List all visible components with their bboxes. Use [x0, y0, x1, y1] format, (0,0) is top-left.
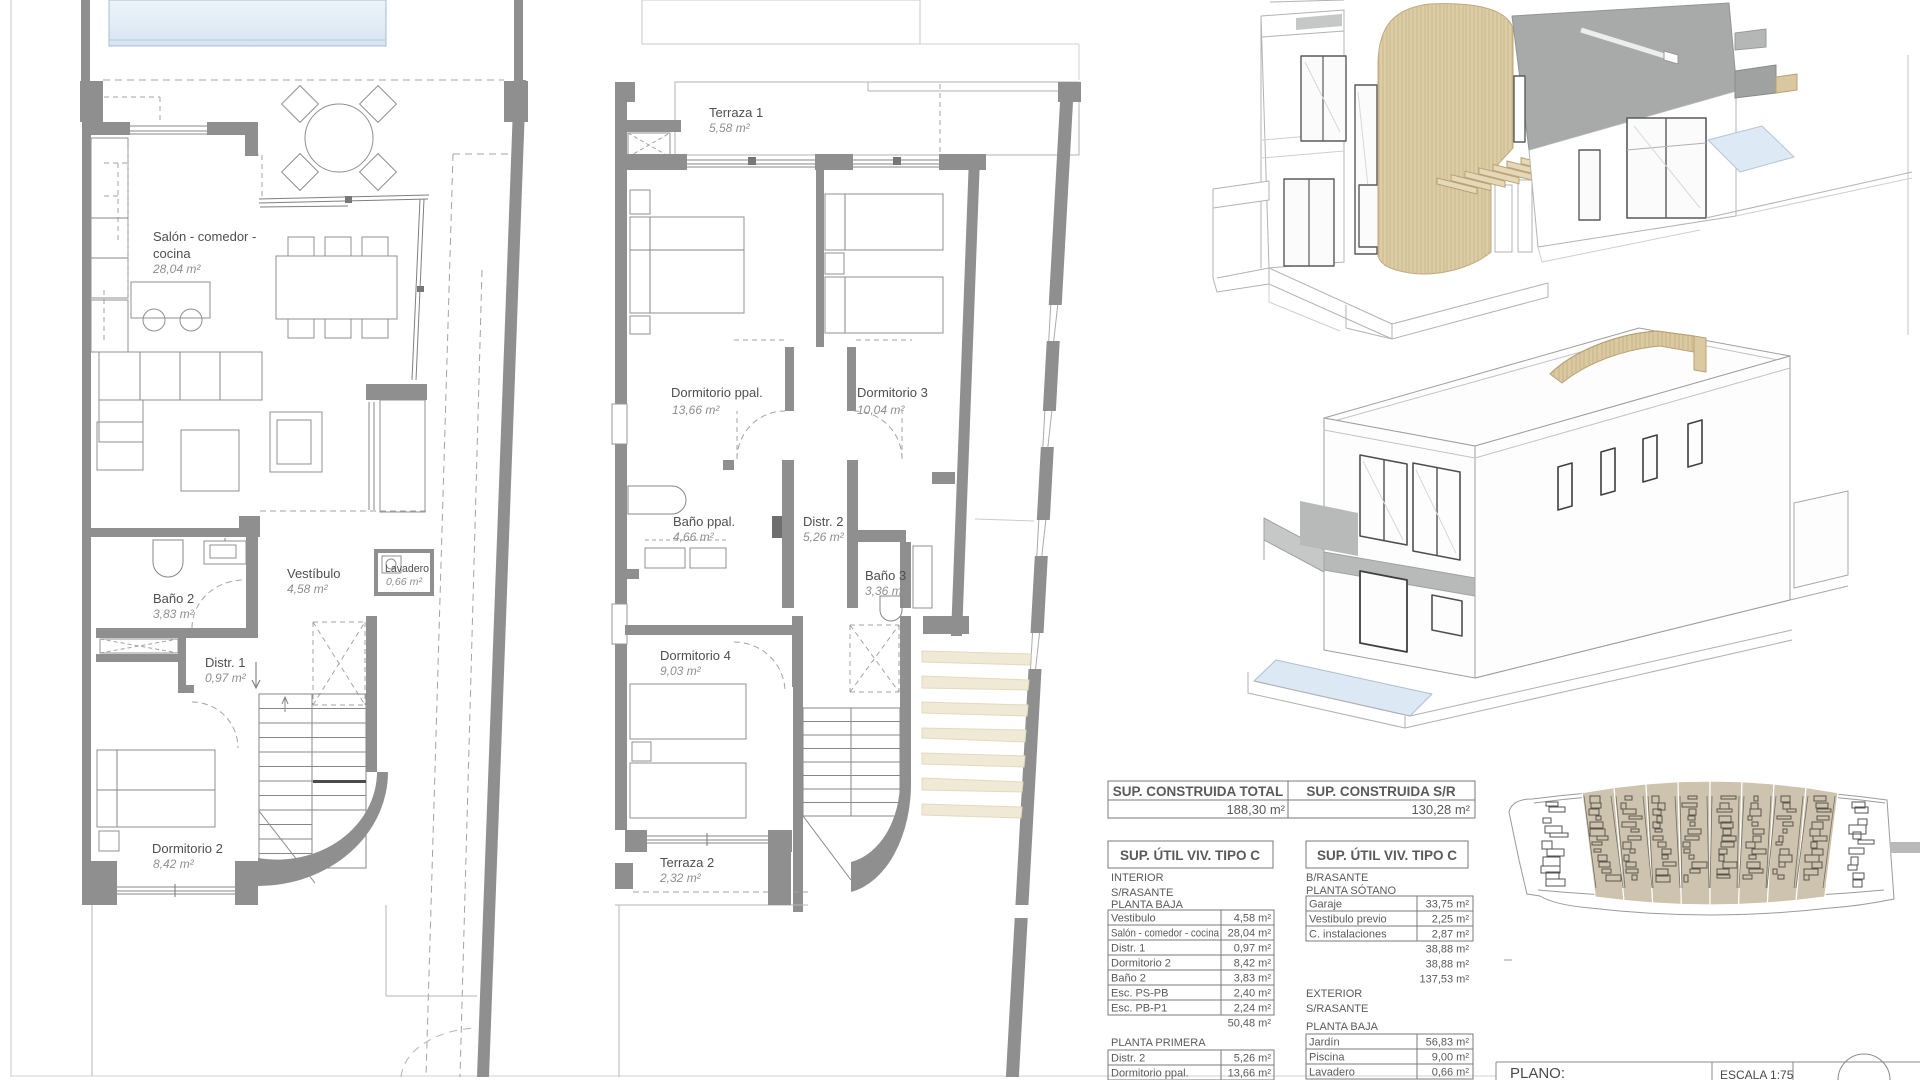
svg-text:5,26 m²: 5,26 m²: [803, 530, 845, 544]
svg-text:13,66 m²: 13,66 m²: [672, 403, 720, 417]
svg-text:Baño 2: Baño 2: [1111, 973, 1146, 985]
svg-text:Jardín: Jardín: [1309, 1037, 1340, 1049]
svg-text:PLANTA PRIMERA: PLANTA PRIMERA: [1111, 1037, 1206, 1049]
svg-text:PLANO:: PLANO:: [1510, 1065, 1565, 1080]
svg-text:Dormitorio ppal.: Dormitorio ppal.: [671, 385, 763, 400]
svg-text:Dormitorio 2: Dormitorio 2: [1111, 958, 1171, 970]
svg-text:50,48 m²: 50,48 m²: [1228, 1018, 1272, 1030]
svg-text:EXTERIOR: EXTERIOR: [1306, 988, 1362, 1000]
svg-text:2,40 m²: 2,40 m²: [1234, 988, 1272, 1000]
svg-text:4,58 m²: 4,58 m²: [1234, 913, 1272, 925]
svg-text:2,25 m²: 2,25 m²: [1432, 914, 1470, 926]
svg-text:Salón - comedor - cocina: Salón - comedor - cocina: [1111, 928, 1220, 940]
svg-text:S/RASANTE: S/RASANTE: [1111, 887, 1173, 899]
svg-text:8,42 m²: 8,42 m²: [153, 857, 195, 871]
svg-text:PLANTA BAJA: PLANTA BAJA: [1111, 899, 1184, 911]
svg-text:INTERIOR: INTERIOR: [1111, 872, 1164, 884]
svg-text:4,58 m²: 4,58 m²: [287, 582, 329, 596]
svg-text:SUP. ÚTIL VIV. TIPO C: SUP. ÚTIL VIV. TIPO C: [1317, 848, 1457, 863]
svg-text:3,83 m²: 3,83 m²: [1234, 973, 1272, 985]
svg-text:13,66 m²: 13,66 m²: [1228, 1068, 1272, 1080]
svg-text:Vestíbulo: Vestíbulo: [287, 566, 341, 581]
svg-text:9,03 m²: 9,03 m²: [660, 664, 702, 678]
svg-text:Baño 3: Baño 3: [865, 568, 906, 583]
svg-text:Vestibulo: Vestibulo: [1111, 913, 1156, 925]
svg-text:5,26 m²: 5,26 m²: [1234, 1053, 1272, 1065]
svg-text:Distr. 1: Distr. 1: [205, 655, 245, 670]
svg-text:4,66 m²: 4,66 m²: [673, 530, 715, 544]
svg-text:cocina: cocina: [153, 246, 191, 261]
svg-text:0,97 m²: 0,97 m²: [205, 671, 247, 685]
svg-text:SUP. CONSTRUIDA TOTAL: SUP. CONSTRUIDA TOTAL: [1113, 784, 1284, 799]
svg-text:Lavadero: Lavadero: [385, 563, 429, 575]
svg-text:38,88 m²: 38,88 m²: [1426, 959, 1470, 971]
svg-text:Garaje: Garaje: [1309, 899, 1342, 911]
svg-text:Esc. PB-P1: Esc. PB-P1: [1111, 1003, 1167, 1015]
svg-text:Piscina: Piscina: [1309, 1052, 1345, 1064]
svg-text:C. instalaciones: C. instalaciones: [1309, 929, 1387, 941]
svg-text:2,24 m²: 2,24 m²: [1234, 1003, 1272, 1015]
svg-text:Baño ppal.: Baño ppal.: [673, 514, 735, 529]
svg-text:Dormitorio 2: Dormitorio 2: [152, 841, 223, 856]
svg-text:10,04 m²: 10,04 m²: [857, 403, 905, 417]
svg-text:SUP. CONSTRUIDA S/R: SUP. CONSTRUIDA S/R: [1306, 784, 1456, 799]
svg-text:ESCALA 1:75: ESCALA 1:75: [1720, 1068, 1794, 1080]
svg-text:Dormitorio 3: Dormitorio 3: [857, 385, 928, 400]
svg-text:33,75 m²: 33,75 m²: [1426, 899, 1470, 911]
svg-text:3,83 m²: 3,83 m²: [153, 607, 195, 621]
svg-text:5,58 m²: 5,58 m²: [709, 121, 751, 135]
svg-text:9,00 m²: 9,00 m²: [1432, 1052, 1470, 1064]
svg-text:Salón - comedor -: Salón - comedor -: [153, 229, 256, 244]
svg-text:PLANTA SÓTANO: PLANTA SÓTANO: [1306, 884, 1397, 897]
svg-text:8,42 m²: 8,42 m²: [1234, 958, 1272, 970]
svg-text:B/RASANTE: B/RASANTE: [1306, 872, 1368, 884]
svg-text:188,30 m²: 188,30 m²: [1226, 802, 1285, 817]
svg-text:0,97 m²: 0,97 m²: [1234, 943, 1272, 955]
svg-text:137,53 m²: 137,53 m²: [1419, 974, 1469, 986]
svg-text:56,83 m²: 56,83 m²: [1426, 1037, 1470, 1049]
svg-text:38,88 m²: 38,88 m²: [1426, 944, 1470, 956]
svg-text:28,04 m²: 28,04 m²: [1228, 928, 1272, 940]
svg-text:0,66 m²: 0,66 m²: [1432, 1067, 1470, 1079]
svg-text:Dormitorio ppal.: Dormitorio ppal.: [1111, 1068, 1189, 1080]
svg-text:Lavadero: Lavadero: [1309, 1067, 1355, 1079]
svg-text:0,66 m²: 0,66 m²: [386, 576, 422, 588]
svg-text:Baño 2: Baño 2: [153, 591, 194, 606]
svg-text:Dormitorio 4: Dormitorio 4: [660, 648, 731, 663]
svg-text:Vestibulo previo: Vestibulo previo: [1309, 914, 1387, 926]
svg-text:3,36 m²: 3,36 m²: [865, 584, 907, 598]
svg-text:2,87 m²: 2,87 m²: [1432, 929, 1470, 941]
svg-text:Terraza 1: Terraza 1: [709, 105, 763, 120]
svg-text:Distr. 2: Distr. 2: [803, 514, 843, 529]
svg-text:Terraza 2: Terraza 2: [660, 855, 714, 870]
svg-text:SUP. ÚTIL VIV. TIPO C: SUP. ÚTIL VIV. TIPO C: [1120, 848, 1260, 863]
svg-text:2,32 m²: 2,32 m²: [659, 871, 702, 885]
svg-text:S/RASANTE: S/RASANTE: [1306, 1003, 1368, 1015]
svg-text:Distr. 2: Distr. 2: [1111, 1053, 1145, 1065]
svg-text:Esc. PS-PB: Esc. PS-PB: [1111, 988, 1168, 1000]
svg-text:PLANTA BAJA: PLANTA BAJA: [1306, 1021, 1379, 1033]
svg-text:130,28 m²: 130,28 m²: [1411, 802, 1470, 817]
svg-text:28,04 m²: 28,04 m²: [152, 262, 201, 276]
svg-text:Distr. 1: Distr. 1: [1111, 943, 1145, 955]
